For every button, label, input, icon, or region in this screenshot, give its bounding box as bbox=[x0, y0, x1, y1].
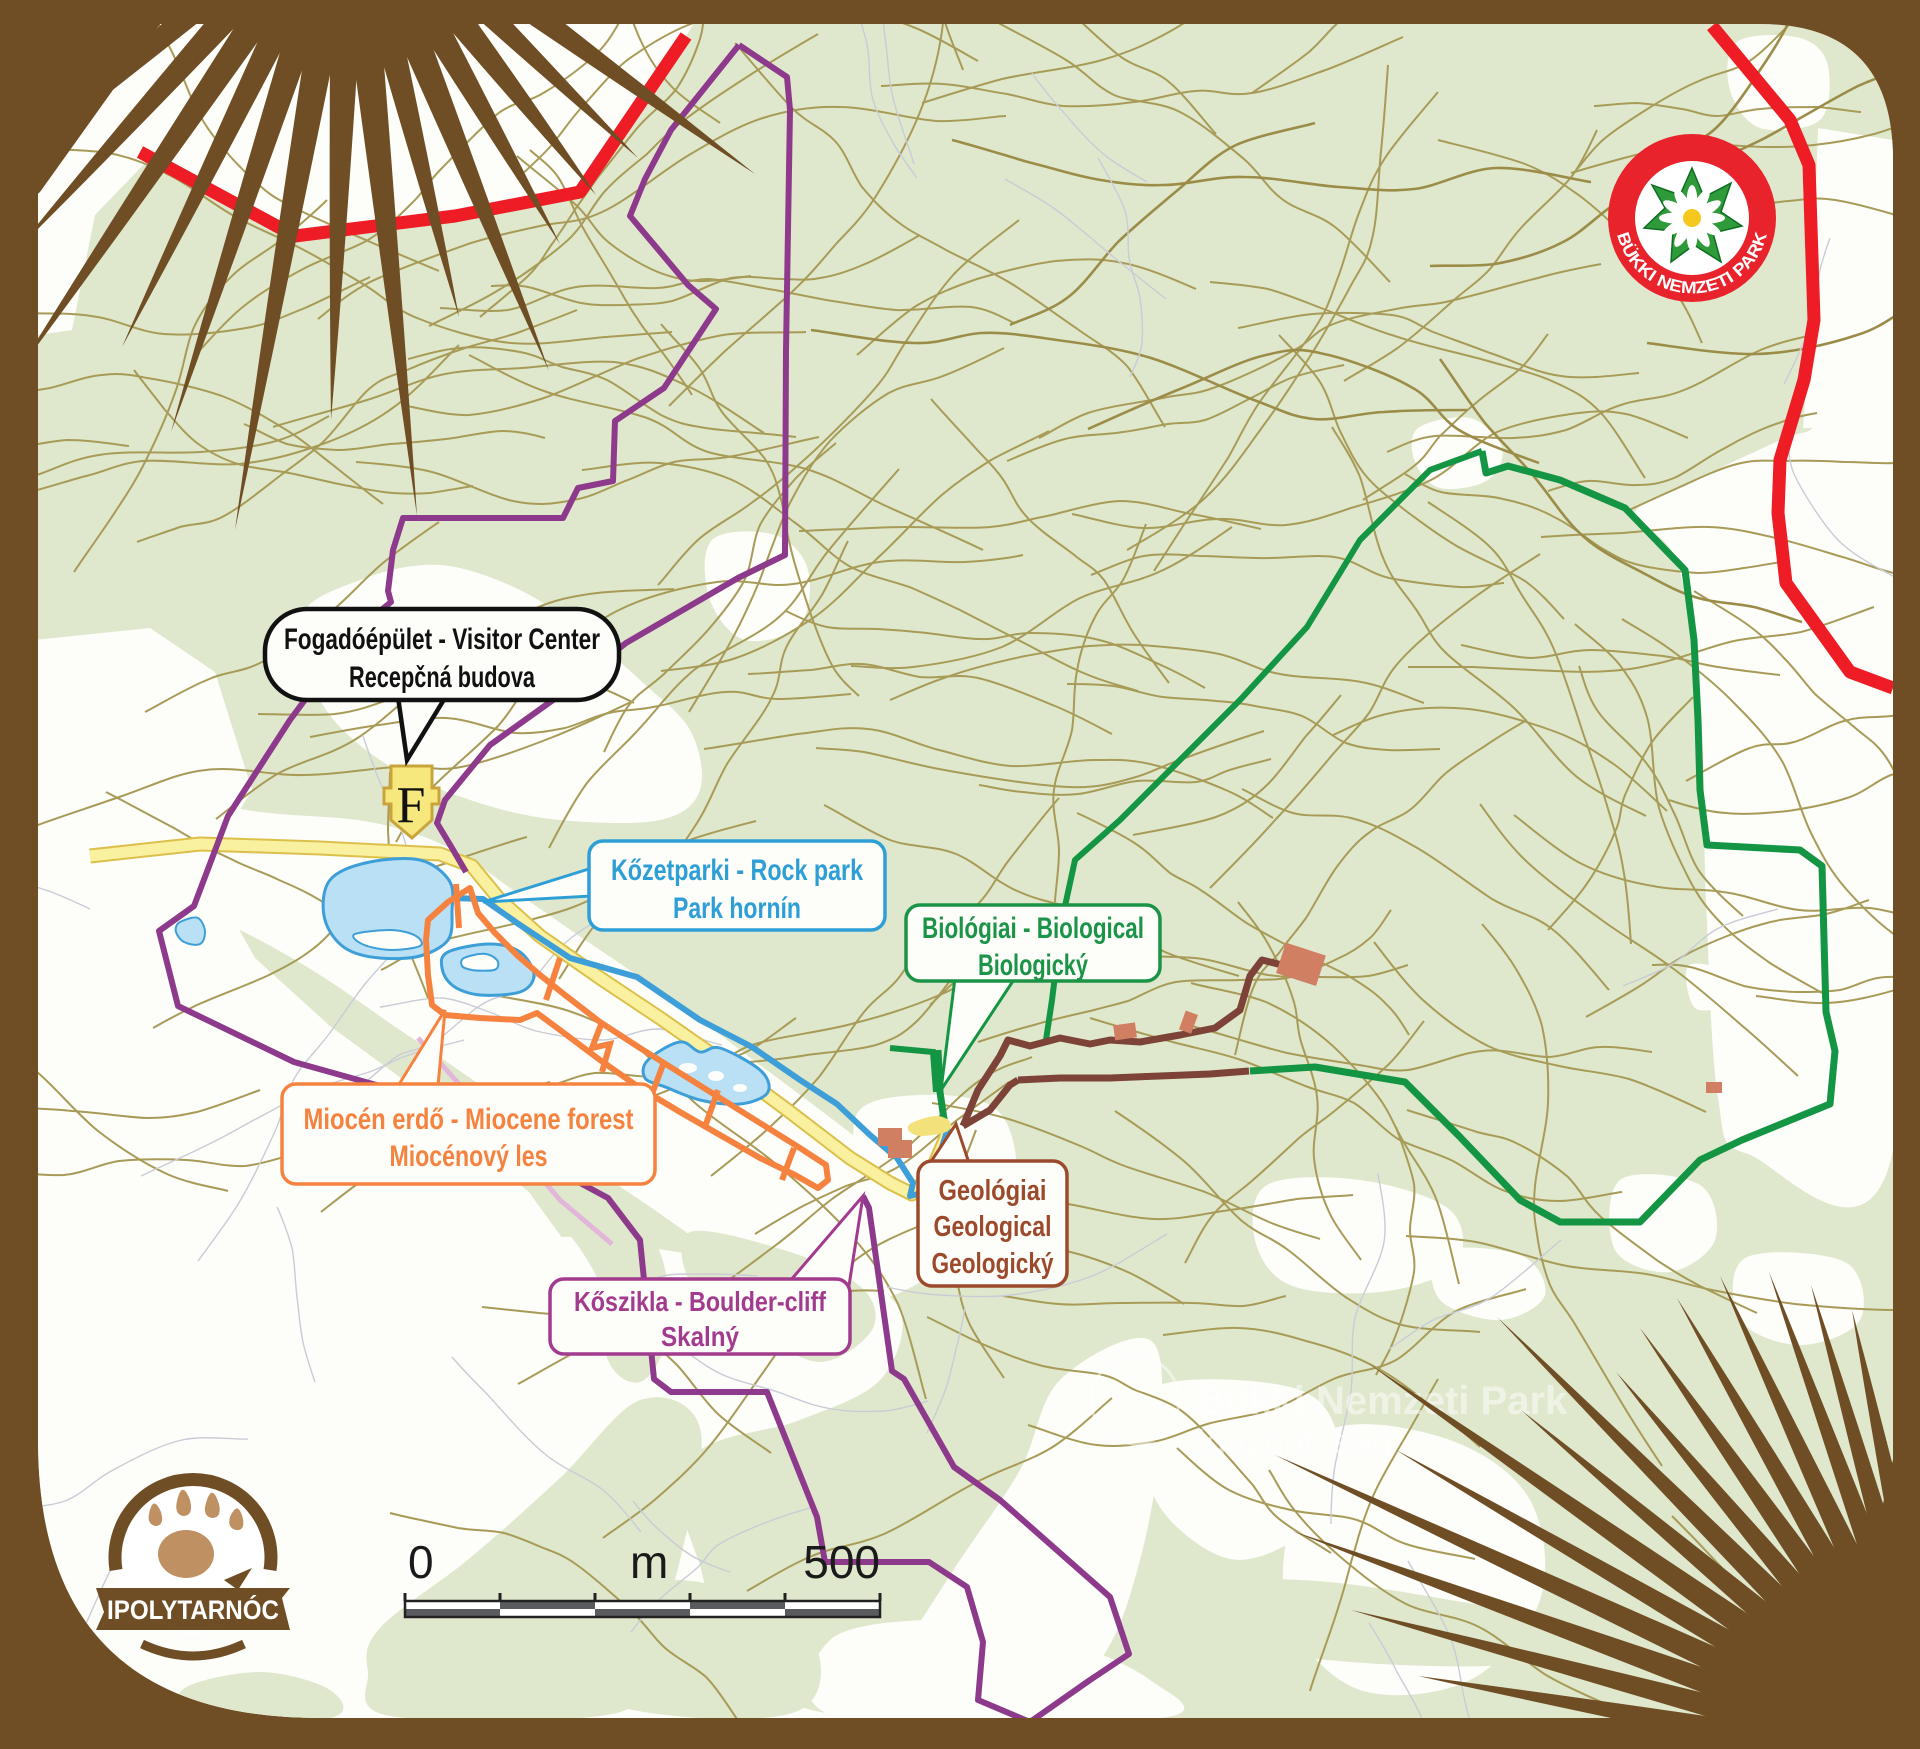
svg-text:F: F bbox=[397, 777, 426, 834]
svg-text:Geológiai: Geológiai bbox=[939, 1175, 1047, 1207]
svg-text:m: m bbox=[630, 1536, 668, 1588]
svg-text:Fogadóépület - Visitor Center: Fogadóépület - Visitor Center bbox=[284, 623, 600, 656]
svg-text:Biologický: Biologický bbox=[978, 949, 1088, 982]
svg-text:500: 500 bbox=[803, 1536, 880, 1588]
svg-text:IPOLYTARNÓC: IPOLYTARNÓC bbox=[107, 1594, 279, 1625]
svg-text:Bükki Nemzeti Park: Bükki Nemzeti Park bbox=[1196, 1379, 1568, 1423]
svg-text:Miocénový les: Miocénový les bbox=[390, 1140, 548, 1173]
svg-text:Kőszikla - Boulder-cliff: Kőszikla - Boulder-cliff bbox=[574, 1286, 827, 1317]
svg-text:Geologický: Geologický bbox=[932, 1248, 1054, 1280]
svg-text:Biológiai - Biological: Biológiai - Biological bbox=[922, 912, 1144, 945]
svg-text:Kőzetparki - Rock park: Kőzetparki - Rock park bbox=[611, 854, 863, 887]
svg-text:Park hornín: Park hornín bbox=[673, 892, 801, 925]
svg-text:0: 0 bbox=[408, 1536, 434, 1588]
svg-text:Skalný: Skalný bbox=[661, 1321, 739, 1352]
svg-text:Miocén erdő - Miocene forest: Miocén erdő - Miocene forest bbox=[304, 1103, 634, 1136]
svg-text:Recepčná budova: Recepčná budova bbox=[349, 661, 535, 694]
svg-text:Igazgatóság: Igazgatóság bbox=[1196, 1421, 1392, 1462]
svg-text:Geological: Geological bbox=[934, 1211, 1052, 1243]
